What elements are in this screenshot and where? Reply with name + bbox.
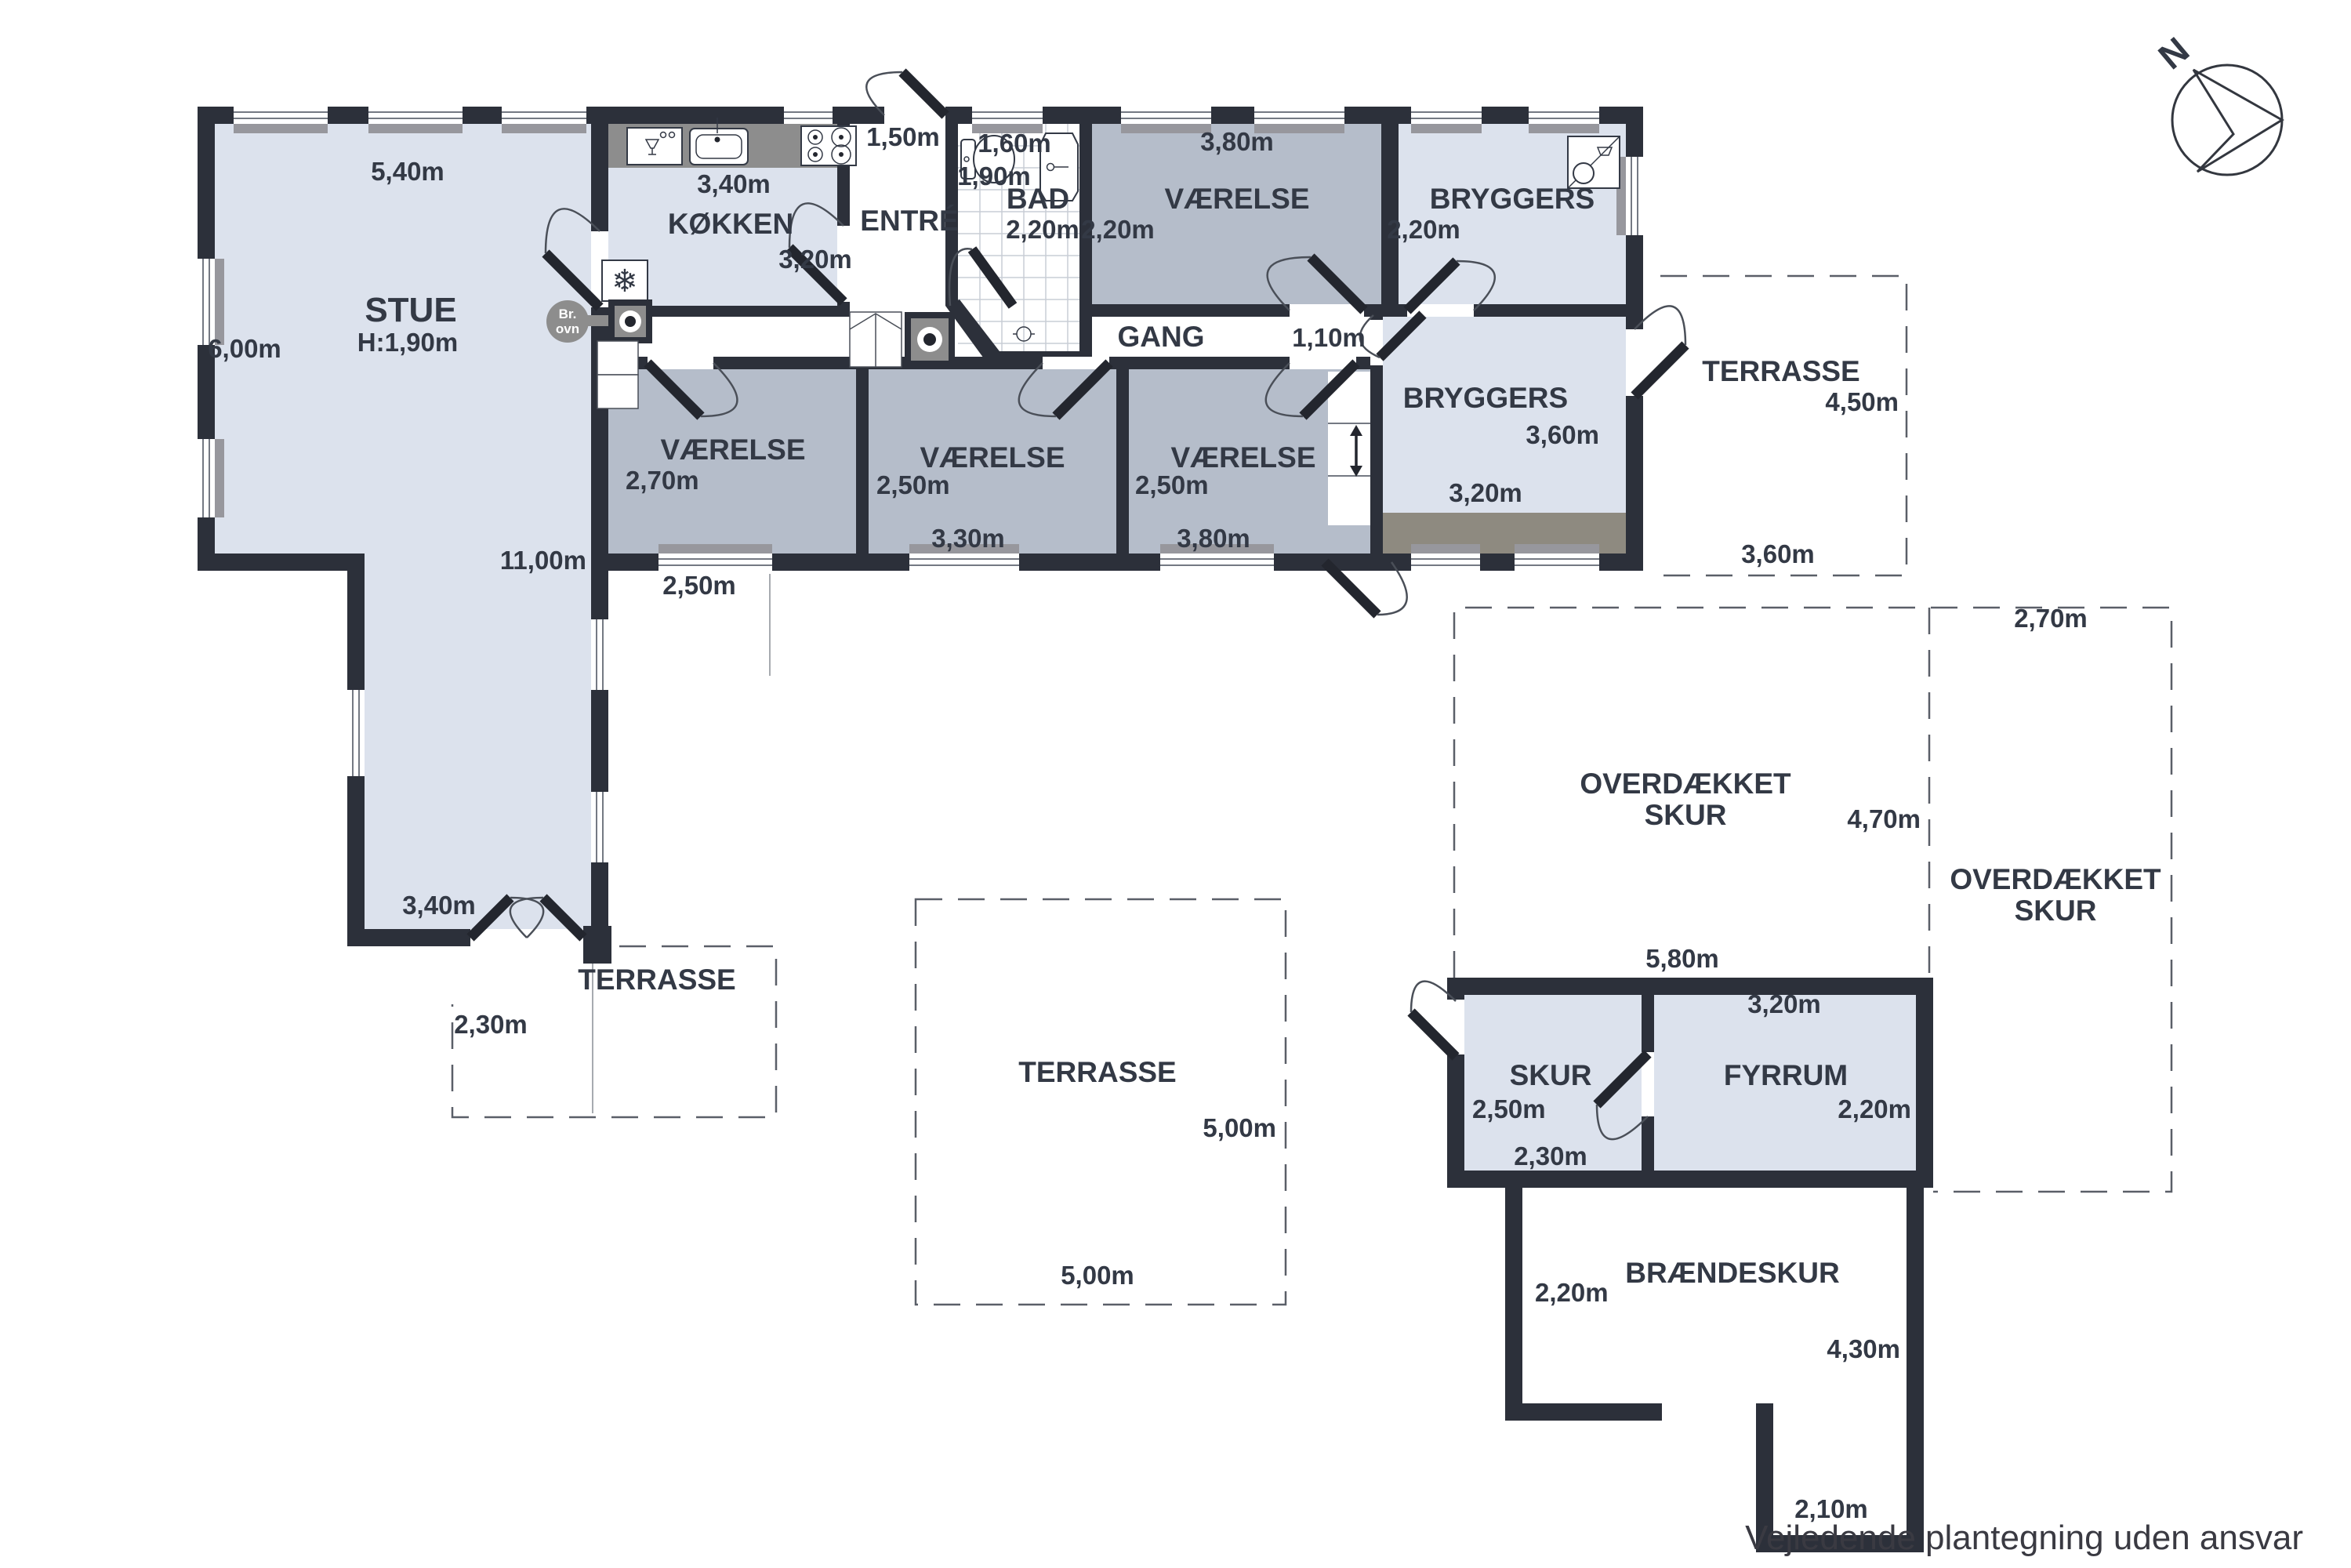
- dim-entre-entry: 1,50m: [866, 122, 940, 151]
- label-overdaekket-west-line1: OVERDÆKKET: [1580, 768, 1791, 800]
- dim-skur-height: 2,50m: [1472, 1094, 1546, 1123]
- dim-stue-leg: 3,40m: [402, 891, 476, 920]
- dim-kokken-width: 3,40m: [697, 169, 771, 198]
- room-label-vaerelse-top: VÆRELSE: [1164, 183, 1309, 215]
- hatch-niche: [1328, 372, 1370, 525]
- dim-vaerelse-a-height: 2,70m: [626, 466, 699, 495]
- room-label-stue: STUE: [365, 291, 456, 329]
- wood-stove-gang-icon: [905, 312, 955, 367]
- dim-overdaekket-west-height: 4,70m: [1847, 804, 1921, 833]
- room-label-entre: ENTRÉ: [860, 205, 958, 237]
- svg-text:ovn: ovn: [556, 321, 579, 336]
- entre-closet-icon: [850, 312, 902, 367]
- dim-fyrrum-height: 2,20m: [1838, 1094, 1911, 1123]
- dim-vaerelse-b-width: 3,30m: [931, 524, 1005, 553]
- washing-machine-icon: [1568, 136, 1620, 188]
- stove-burners-icon: [801, 126, 856, 165]
- dim-gang-width: 1,10m: [1292, 323, 1366, 352]
- dim-kokken-height: 3,20m: [778, 245, 852, 274]
- dim-terrasse-east-height: 4,50m: [1825, 387, 1899, 416]
- room-label-bad: BAD: [1007, 183, 1069, 215]
- disclaimer-text: Vejledende plantegning uden ansvar: [1745, 1519, 2303, 1557]
- terrasse-east-outline: [1660, 276, 1907, 575]
- dim-vaerelse-b-height: 2,50m: [876, 470, 950, 499]
- room-label-fyrrum: FYRRUM: [1724, 1059, 1848, 1091]
- dim-braendeskur-left: 2,20m: [1535, 1278, 1609, 1307]
- room-label-gang: GANG: [1118, 321, 1205, 353]
- room-label-vaerelse-c: VÆRELSE: [1170, 441, 1315, 474]
- dim-vaerelse-c-width: 3,80m: [1177, 524, 1250, 553]
- stue-ceiling-height: H:1,90m: [357, 328, 458, 357]
- wood-stove-label: Br. ovn: [546, 300, 589, 343]
- room-label-vaerelse-a: VÆRELSE: [660, 434, 805, 466]
- compass-north-label: N: [2150, 29, 2197, 77]
- room-label-skur: SKUR: [1510, 1059, 1592, 1091]
- compass-circle: [2172, 65, 2282, 175]
- floor-plan-page: ❄ Br. ovn: [0, 0, 2351, 1568]
- dim-bad-height: 2,20m: [1006, 215, 1079, 244]
- dim-vaerelse-top-width: 3,80m: [1200, 127, 1274, 156]
- corner-post: [583, 926, 611, 964]
- room-label-braendeskur: BRÆNDESKUR: [1625, 1257, 1839, 1289]
- label-terrasse-south: TERRASSE: [1018, 1056, 1176, 1088]
- dim-vaerelse-c-height: 2,50m: [1135, 470, 1209, 499]
- label-terrasse-east: TERRASSE: [1702, 355, 1859, 387]
- label-overdaekket-west-line2: SKUR: [1645, 799, 1727, 831]
- dim-stue-width: 5,40m: [371, 157, 444, 186]
- label-overdaekket-east-line1: OVERDÆKKET: [1950, 863, 2161, 895]
- dim-fyrrum-width: 3,20m: [1747, 989, 1821, 1018]
- sink-icon: [690, 129, 748, 165]
- dim-terrasse-south-height: 5,00m: [1203, 1113, 1276, 1142]
- terrasse-south-outline: [916, 899, 1286, 1305]
- svg-text:❄: ❄: [611, 264, 638, 299]
- dim-stue-length: 11,00m: [500, 546, 586, 575]
- vaerelse-a-closet-icon: [597, 341, 638, 408]
- dim-vaerelse-top-height: 2,20m: [1081, 215, 1155, 244]
- dim-bad-width: 1,60m: [978, 129, 1051, 158]
- label-overdaekket-east-line2: SKUR: [2015, 895, 2097, 927]
- dim-skur-width: 2,30m: [1514, 1142, 1587, 1171]
- room-label-vaerelse-b: VÆRELSE: [920, 441, 1065, 474]
- room-label-kokken: KØKKEN: [668, 208, 793, 240]
- label-terrasse-west: TERRASSE: [578, 964, 735, 996]
- dim-terrasse-east-width: 3,60m: [1741, 539, 1815, 568]
- room-label-bryggers-top: BRYGGERS: [1430, 183, 1595, 215]
- stue-leg-floor: [365, 554, 591, 929]
- dim-bryggers-east-height: 3,60m: [1526, 420, 1599, 449]
- dim-bryggers-top-height: 2,20m: [1387, 215, 1460, 244]
- floor-plan-drawing: ❄ Br. ovn: [0, 0, 2351, 1568]
- dimension-lines: [593, 574, 770, 1113]
- room-label-bryggers-east: BRYGGERS: [1403, 382, 1568, 414]
- compass: N: [2150, 29, 2282, 175]
- dim-terrasse-west: 2,30m: [454, 1010, 528, 1039]
- dim-terrasse-south-width: 5,00m: [1061, 1261, 1134, 1290]
- dim-bryggers-east-width: 3,20m: [1449, 478, 1522, 507]
- dim-vaerelse-a-window: 2,50m: [662, 571, 736, 600]
- freezer-icon: ❄: [602, 260, 648, 301]
- dim-stue-height: 6,00m: [208, 334, 281, 363]
- dim-outbuilding-width: 5,80m: [1645, 944, 1719, 973]
- svg-text:Br.: Br.: [559, 307, 577, 321]
- dim-braendeskur-right: 4,30m: [1827, 1334, 1900, 1363]
- dim-overdaekket-east-width: 2,70m: [2014, 604, 2088, 633]
